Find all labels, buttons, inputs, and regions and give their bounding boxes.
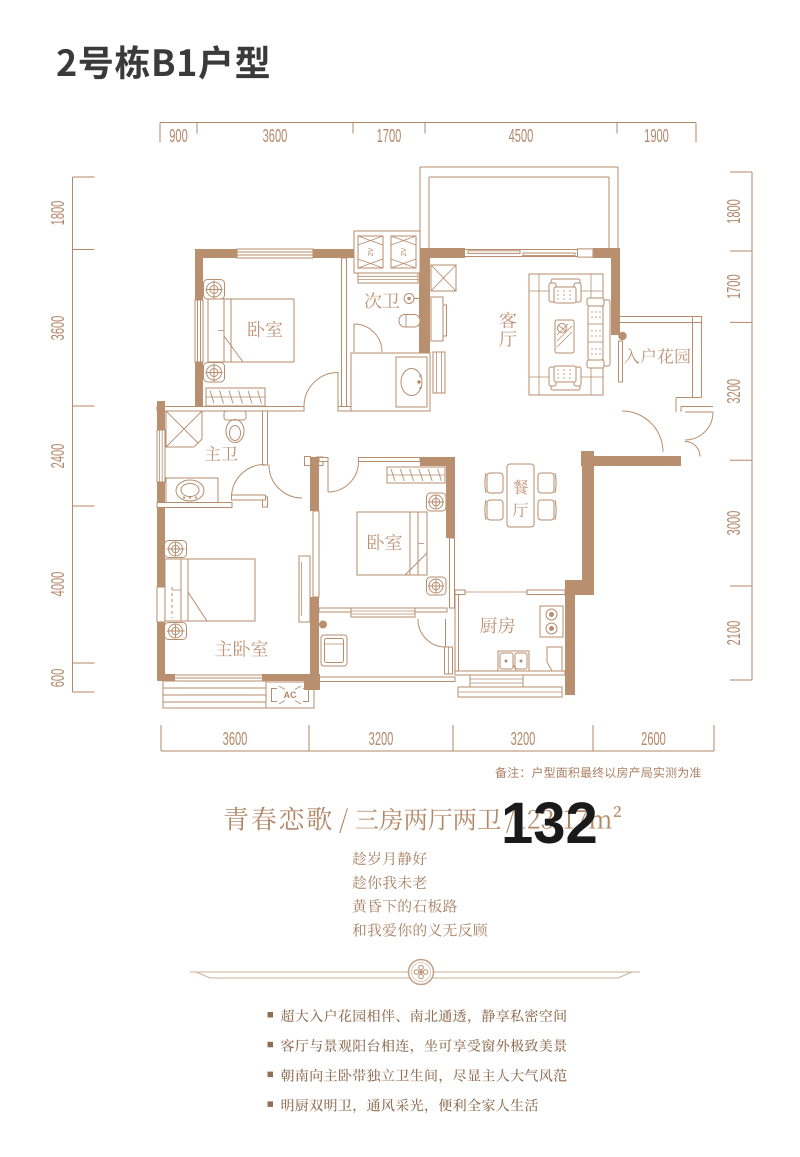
svg-text:1800: 1800 xyxy=(48,201,69,226)
svg-text:AC: AC xyxy=(284,690,297,700)
svg-text:1700: 1700 xyxy=(377,126,402,147)
svg-text:3600: 3600 xyxy=(48,316,69,341)
svg-text:4500: 4500 xyxy=(509,126,534,147)
svg-text:132: 132 xyxy=(501,791,598,856)
svg-text:3600: 3600 xyxy=(223,729,248,750)
svg-text:3600: 3600 xyxy=(263,126,288,147)
svg-text:3200: 3200 xyxy=(369,729,394,750)
svg-text:2100: 2100 xyxy=(724,621,745,646)
svg-text:2400: 2400 xyxy=(48,444,69,469)
svg-text:1700: 1700 xyxy=(724,274,745,299)
svg-text:3200: 3200 xyxy=(511,729,536,750)
svg-text:3000: 3000 xyxy=(724,511,745,536)
svg-text:1900: 1900 xyxy=(644,126,669,147)
svg-text:600: 600 xyxy=(48,669,69,688)
svg-text:2V: 2V xyxy=(368,247,375,256)
svg-text:900: 900 xyxy=(169,126,188,147)
svg-text:3200: 3200 xyxy=(724,379,745,404)
svg-text:2V: 2V xyxy=(401,247,408,256)
svg-text:4000: 4000 xyxy=(48,572,69,597)
svg-text:2600: 2600 xyxy=(641,729,666,750)
svg-text:1800: 1800 xyxy=(724,199,745,224)
